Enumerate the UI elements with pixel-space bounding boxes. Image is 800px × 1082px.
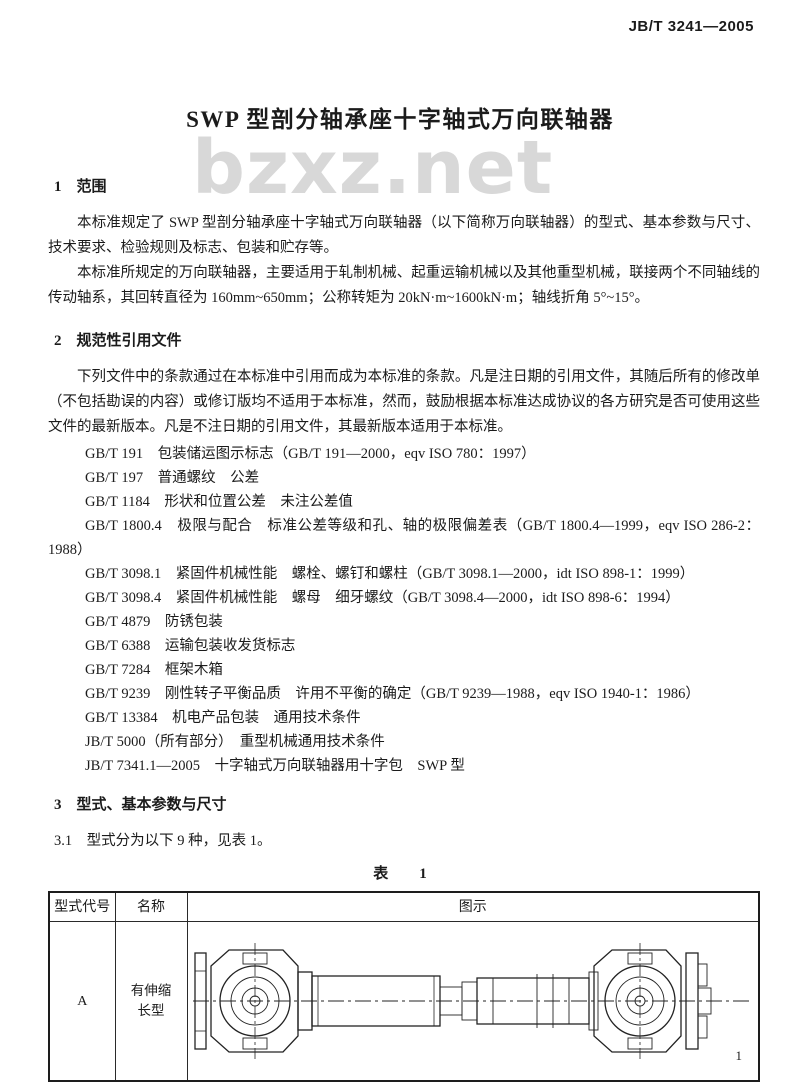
reference-item: GB/T 3098.1 紧固件机械性能 螺栓、螺钉和螺柱（GB/T 3098.1…: [48, 562, 760, 586]
header-type-code: 型式代号: [49, 892, 115, 922]
illustration-cell: [187, 922, 759, 1082]
reference-item: GB/T 1800.4 极限与配合 标准公差等级和孔、轴的极限偏差表（GB/T …: [48, 514, 760, 562]
standard-number: JB/T 3241—2005: [629, 18, 754, 35]
section-3-heading: 3 型式、基本参数与尺寸: [54, 794, 760, 816]
universal-coupling-diagram: [193, 926, 753, 1076]
section-1-paragraph-2: 本标准所规定的万向联轴器，主要适用于轧制机械、起重运输机械以及其他重型机械，联接…: [48, 261, 760, 311]
clause-3-1: 3.1 型式分为以下 9 种，见表 1。: [54, 829, 760, 854]
reference-item: GB/T 191 包装储运图示标志（GB/T 191—2000，eqv ISO …: [48, 442, 760, 466]
type-name-line2: 长型: [116, 1001, 187, 1021]
reference-item: JB/T 5000（所有部分） 重型机械通用技术条件: [48, 730, 760, 754]
document-page: JB/T 3241—2005 bzxz.net SWP 型剖分轴承座十字轴式万向…: [0, 0, 800, 1082]
reference-item: GB/T 4879 防锈包装: [48, 610, 760, 634]
reference-item: GB/T 197 普通螺纹 公差: [48, 466, 760, 490]
type-code-cell: A: [49, 922, 115, 1082]
section-2-heading: 2 规范性引用文件: [54, 330, 760, 352]
reference-item: JB/T 7341.1—2005 十字轴式万向联轴器用十字包 SWP 型: [48, 754, 760, 778]
document-title: SWP 型剖分轴承座十字轴式万向联轴器: [0, 100, 800, 134]
section-1-heading: 1 范围: [54, 176, 760, 198]
reference-item: GB/T 1184 形状和位置公差 未注公差值: [48, 490, 760, 514]
document-body: 1 范围 本标准规定了 SWP 型剖分轴承座十字轴式万向联轴器（以下简称万向联轴…: [48, 168, 760, 1082]
reference-item: GB/T 7284 框架木箱: [48, 658, 760, 682]
reference-item: GB/T 6388 运输包装收发货标志: [48, 634, 760, 658]
reference-item: GB/T 3098.4 紧固件机械性能 螺母 细牙螺纹（GB/T 3098.4—…: [48, 586, 760, 610]
type-name-line1: 有伸缩: [116, 981, 187, 1001]
table-1-caption: 表 1: [48, 862, 760, 887]
type-name-cell: 有伸缩 长型: [115, 922, 187, 1082]
section-1-paragraph-1: 本标准规定了 SWP 型剖分轴承座十字轴式万向联轴器（以下简称万向联轴器）的型式…: [48, 211, 760, 261]
normative-references-list: GB/T 191 包装储运图示标志（GB/T 191—2000，eqv ISO …: [48, 442, 760, 778]
table-header-row: 型式代号 名称 图示: [49, 892, 759, 922]
table-1: 型式代号 名称 图示 A 有伸缩 长型: [48, 891, 760, 1082]
page-number: 1: [736, 1048, 743, 1064]
section-2-paragraph: 下列文件中的条款通过在本标准中引用而成为本标准的条款。凡是注日期的引用文件，其随…: [48, 365, 760, 440]
reference-item: GB/T 13384 机电产品包装 通用技术条件: [48, 706, 760, 730]
table-row: A 有伸缩 长型: [49, 922, 759, 1082]
header-name: 名称: [115, 892, 187, 922]
header-illustration: 图示: [187, 892, 759, 922]
reference-item: GB/T 9239 刚性转子平衡品质 许用不平衡的确定（GB/T 9239—19…: [48, 682, 760, 706]
